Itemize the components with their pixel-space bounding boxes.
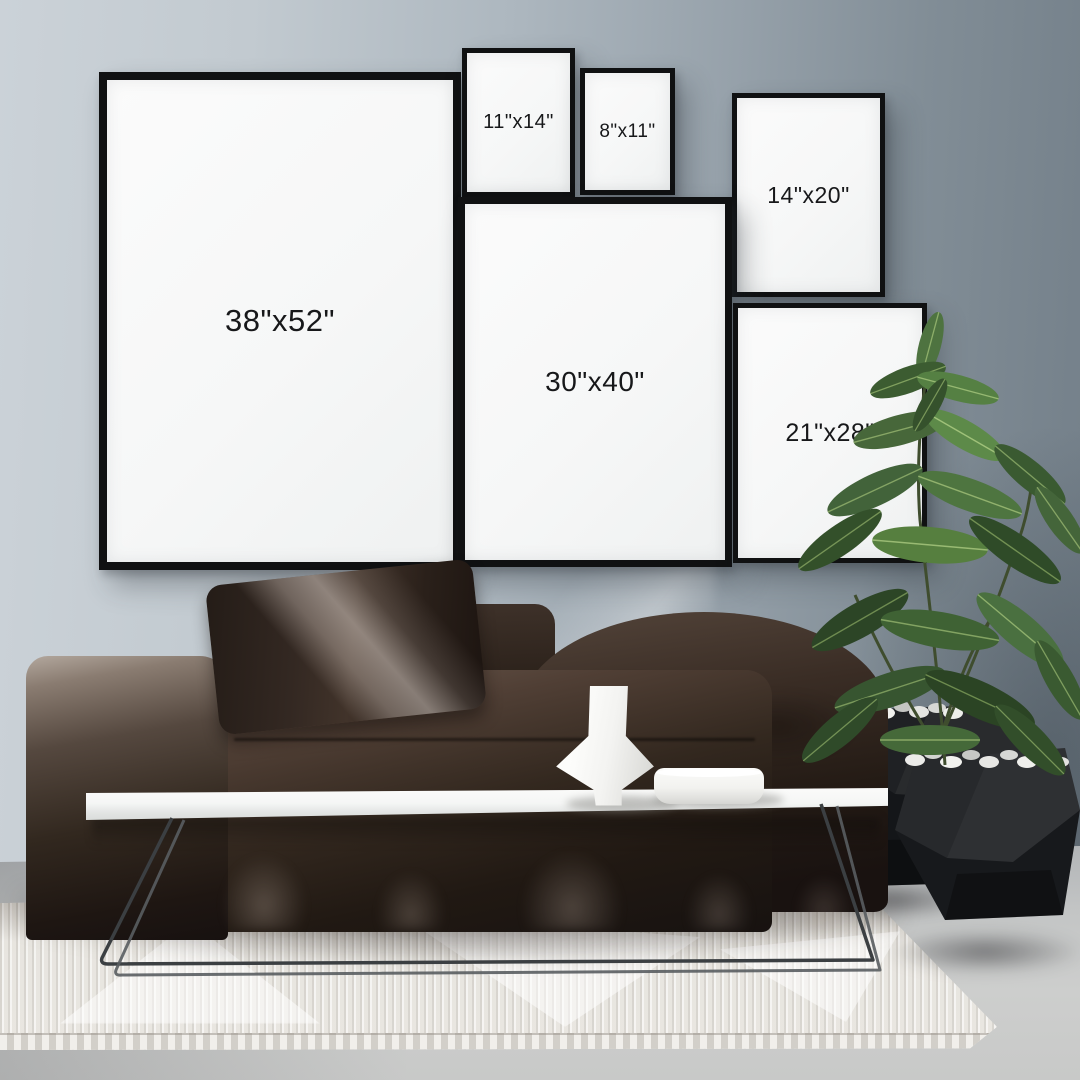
coffee-table-wire-legs xyxy=(80,778,900,983)
frame-8x11: 8"x11" xyxy=(580,68,675,195)
frame-size-label: 8"x11" xyxy=(599,121,655,143)
frame-size-label: 30"x40" xyxy=(545,366,645,398)
sofa-pillow xyxy=(205,558,487,735)
rubber-plant xyxy=(780,310,1080,790)
frame-size-label: 11"x14" xyxy=(483,111,554,134)
plant-leaves xyxy=(790,310,1080,785)
frame-11x14: 11"x14" xyxy=(462,48,575,197)
frame-size-label: 14"x20" xyxy=(767,182,850,209)
white-bowl xyxy=(654,768,764,804)
frame-14x20: 14"x20" xyxy=(732,93,885,297)
frame-30x40: 30"x40" xyxy=(458,197,732,567)
frame-38x52: 38"x52" xyxy=(99,72,461,570)
living-room-frame-size-mockup: 38"x52" 11"x14" 8"x11" 14"x20" 30"x40" 2… xyxy=(0,0,1080,1080)
frame-size-label: 38"x52" xyxy=(225,303,335,339)
